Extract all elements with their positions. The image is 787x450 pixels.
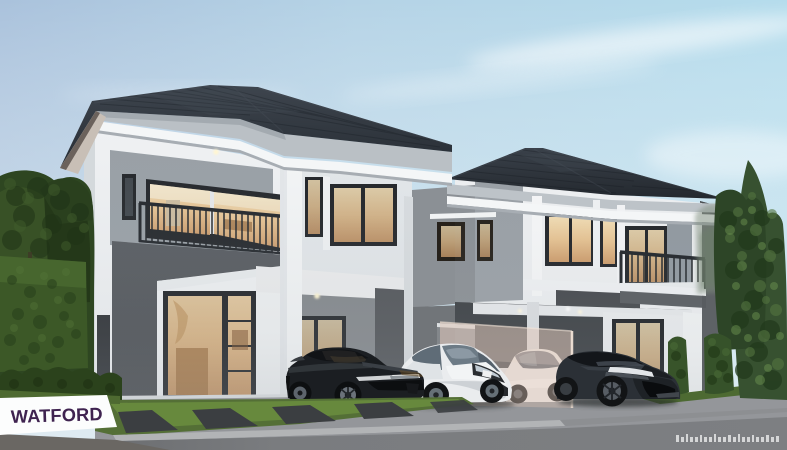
svg-text:WATFORD: WATFORD xyxy=(10,404,103,427)
